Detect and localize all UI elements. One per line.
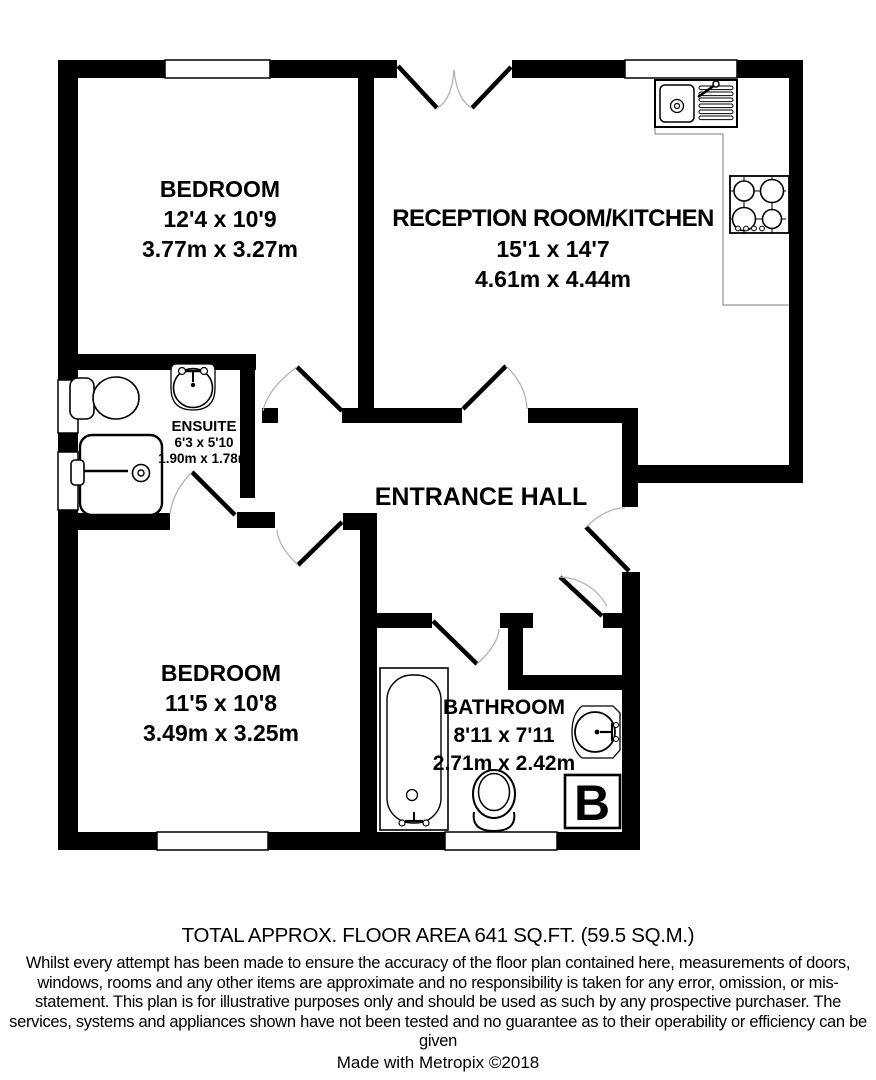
disclaimer-text: Whilst every attempt has been made to en… <box>5 954 871 1052</box>
bathroom-toilet-icon <box>473 770 515 831</box>
room-label-bathroom: BATHROOM 8'11 x 7'11 2.71m x 2.42m <box>433 694 575 778</box>
metropix-credit: Made with Metropix ©2018 <box>0 1053 876 1073</box>
door-french-reception <box>398 66 511 108</box>
room-name: BEDROOM <box>142 174 298 204</box>
ensuite-basin-icon <box>171 364 215 410</box>
room-dims-metric: 3.77m x 3.27m <box>142 234 298 264</box>
kitchen-sink-drainer-icon <box>655 80 737 127</box>
bathroom-basin-icon <box>572 706 620 758</box>
floorplan-page: B BEDROOM 12'4 x 10'9 3.77m x 3.27m RECE… <box>0 0 876 1080</box>
door-cupboard <box>560 577 607 616</box>
room-label-ensuite: ENSUITE 6'3 x 5'10 1.90m x 1.78m <box>158 419 250 467</box>
door-bedroom-2 <box>277 522 342 565</box>
boiler-label: B <box>574 775 610 831</box>
room-dims-metric: 2.71m x 2.42m <box>433 750 575 778</box>
room-dims-metric: 4.61m x 4.44m <box>392 264 713 294</box>
footer: TOTAL APPROX. FLOOR AREA 641 SQ.FT. (59.… <box>0 924 876 1073</box>
room-name: ENTRANCE HALL <box>375 482 588 512</box>
room-name: BEDROOM <box>143 658 299 688</box>
door-bathroom <box>433 621 499 664</box>
room-dims-metric: 3.49m x 3.25m <box>143 718 299 748</box>
room-dims-imperial: 6'3 x 5'10 <box>158 435 250 451</box>
room-label-entrance-hall: ENTRANCE HALL <box>375 482 588 512</box>
room-name: ENSUITE <box>158 419 250 435</box>
room-label-bedroom-2: BEDROOM 11'5 x 10'8 3.49m x 3.25m <box>143 658 299 748</box>
shower-icon <box>71 435 162 515</box>
door-reception <box>463 366 527 409</box>
door-ensuite <box>170 472 235 515</box>
room-label-bedroom-1: BEDROOM 12'4 x 10'9 3.77m x 3.27m <box>142 174 298 264</box>
room-dims-imperial: 11'5 x 10'8 <box>143 688 299 718</box>
window-icon <box>165 60 270 78</box>
door-entrance <box>586 508 629 571</box>
room-dims-imperial: 12'4 x 10'9 <box>142 204 298 234</box>
total-floor-area: TOTAL APPROX. FLOOR AREA 641 SQ.FT. (59.… <box>0 924 876 948</box>
room-dims-metric: 1.90m x 1.78m <box>158 451 250 467</box>
room-label-reception-kitchen: RECEPTION ROOM/KITCHEN 15'1 x 14'7 4.61m… <box>392 204 713 294</box>
room-name: BATHROOM <box>433 694 575 722</box>
window-icon <box>157 832 268 850</box>
room-dims-imperial: 8'11 x 7'11 <box>433 722 575 750</box>
ensuite-toilet-icon <box>70 377 139 419</box>
room-dims-imperial: 15'1 x 14'7 <box>392 234 713 264</box>
door-bedroom-1 <box>263 367 342 411</box>
window-icon <box>625 60 737 78</box>
window-icon <box>445 832 557 850</box>
room-name: RECEPTION ROOM/KITCHEN <box>392 204 713 234</box>
gas-hob-icon <box>730 176 789 233</box>
boiler-icon: B <box>565 775 620 831</box>
